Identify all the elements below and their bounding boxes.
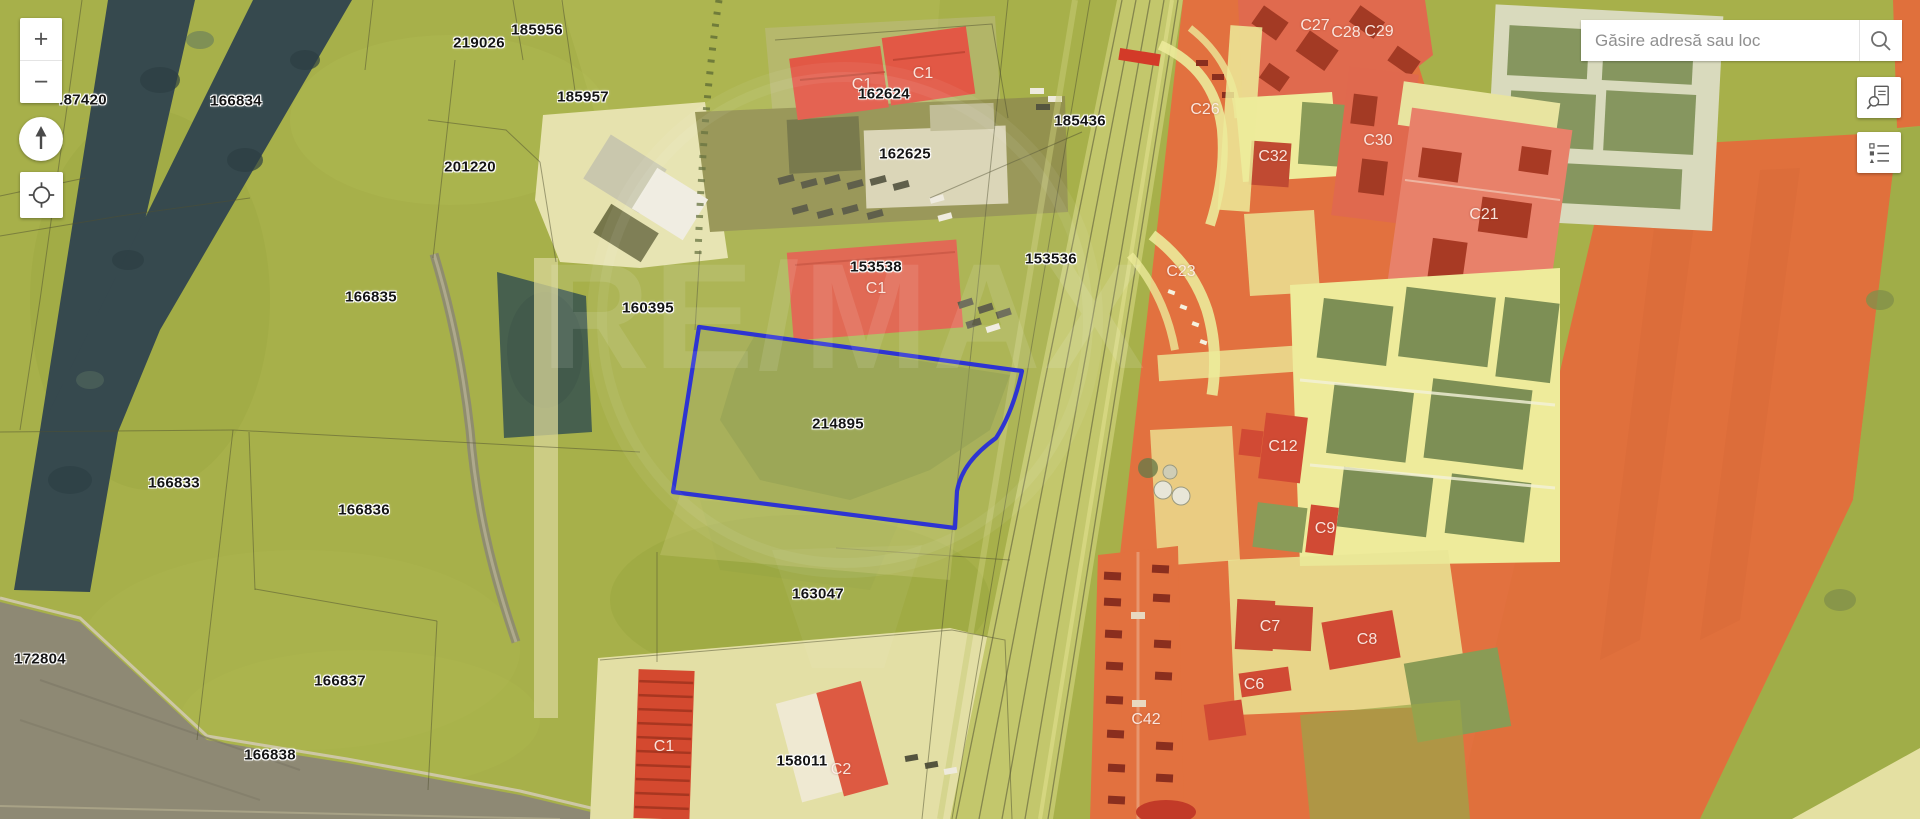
search-input[interactable]: [1581, 20, 1859, 61]
compass-button[interactable]: [19, 117, 63, 161]
zoom-in-button[interactable]: +: [20, 18, 62, 60]
satellite-cadastral-map[interactable]: RE/MAX: [0, 0, 1920, 819]
search-bar: [1581, 20, 1902, 61]
zoom-out-button[interactable]: −: [20, 60, 62, 103]
layer-list-icon: [1864, 138, 1894, 168]
search-icon: [1868, 28, 1894, 54]
search-button[interactable]: [1859, 20, 1902, 61]
locate-button[interactable]: [20, 172, 63, 218]
c1-striped-building: [633, 669, 694, 819]
watermark-text: RE/MAX: [541, 232, 1148, 400]
map-canvas[interactable]: RE/MAX .87420219026185956166834185957201…: [0, 0, 1920, 819]
parcel-search-button[interactable]: [1857, 77, 1901, 118]
legend-button[interactable]: [1857, 132, 1901, 173]
document-magnifier-icon: [1864, 83, 1894, 113]
zoom-controls: + −: [20, 18, 62, 103]
north-arrow-icon: [19, 117, 63, 161]
crosshair-icon: [20, 173, 63, 217]
c42-road: [1090, 546, 1184, 819]
